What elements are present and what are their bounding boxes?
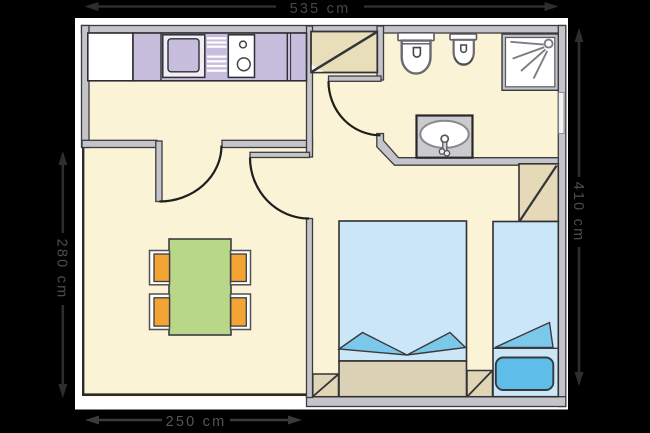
svg-text:280 cm: 280 cm bbox=[54, 239, 70, 300]
svg-text:410 cm: 410 cm bbox=[570, 182, 586, 243]
svg-text:535 cm: 535 cm bbox=[290, 1, 351, 17]
svg-text:250 cm: 250 cm bbox=[166, 414, 227, 430]
